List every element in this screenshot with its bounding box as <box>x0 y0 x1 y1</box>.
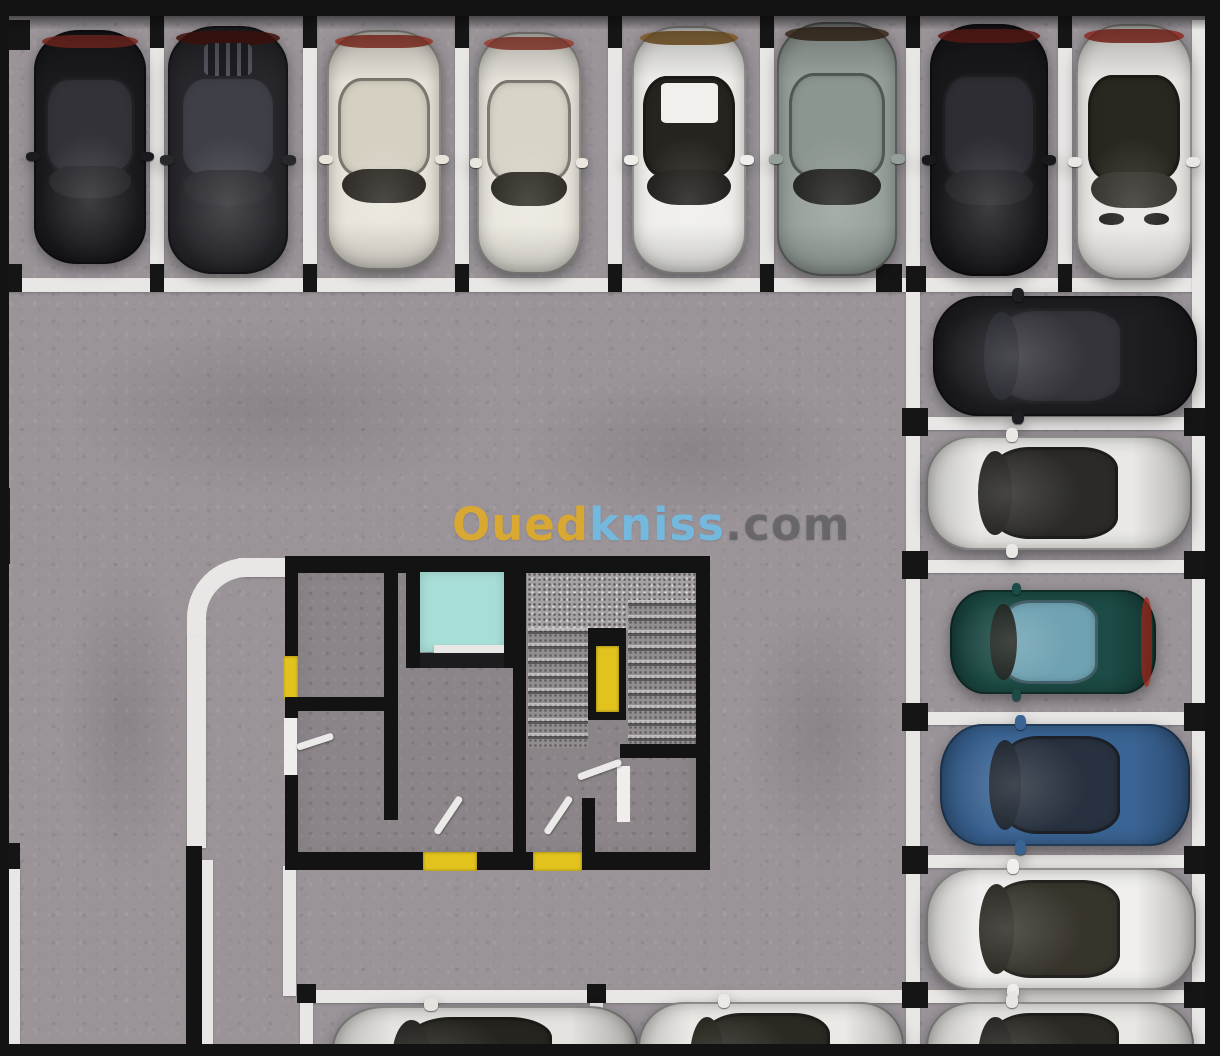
frame-right <box>1205 0 1220 1056</box>
frame-layer <box>0 0 1220 1056</box>
parking-garage-floor-plan: Ouedkniss.com <box>0 0 1220 1056</box>
frame-top <box>0 0 1220 16</box>
frame-top-shadow <box>0 16 1220 30</box>
frame-bottom <box>0 1044 1220 1056</box>
frame-left <box>0 0 9 1056</box>
